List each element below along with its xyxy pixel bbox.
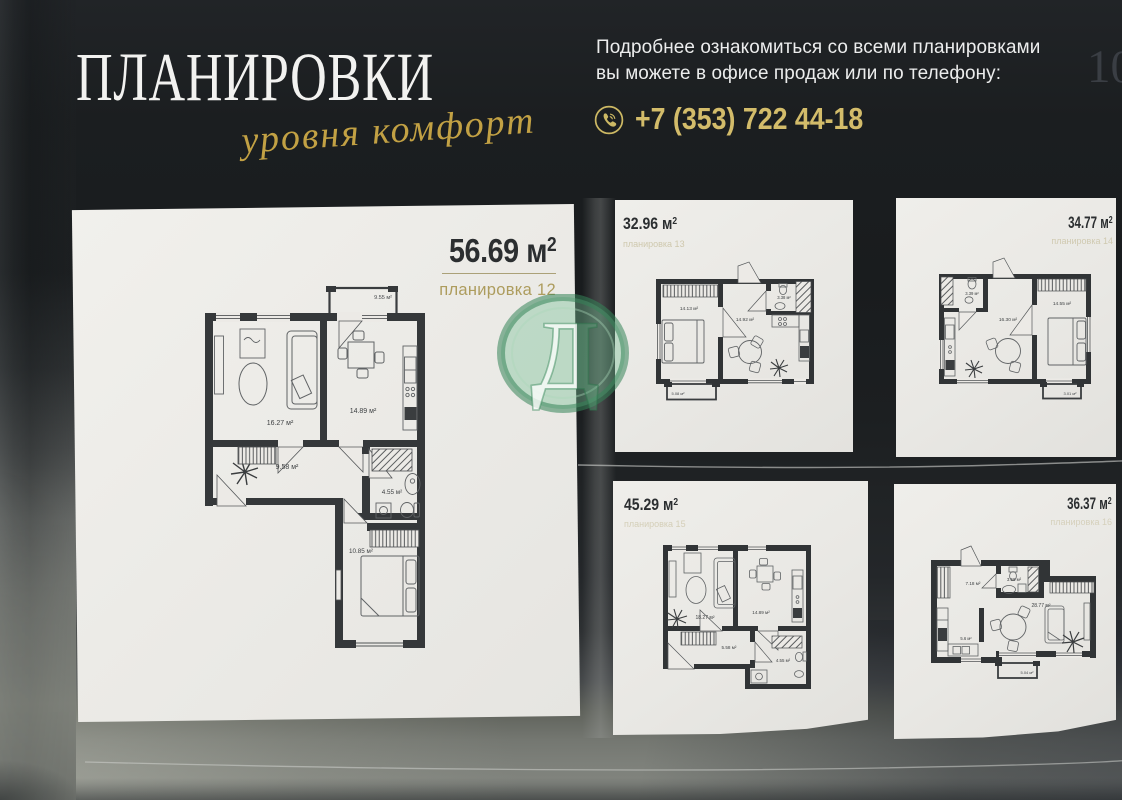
svg-text:9.55 м²: 9.55 м²	[374, 295, 392, 301]
svg-text:7.18 м²: 7.18 м²	[966, 581, 981, 586]
svg-text:9.58 м²: 9.58 м²	[276, 464, 299, 471]
svg-text:3.39 м²: 3.39 м²	[965, 291, 979, 296]
svg-text:4.55 м²: 4.55 м²	[382, 489, 402, 496]
svg-text:4.55 м²: 4.55 м²	[776, 658, 791, 663]
svg-text:3.38 м²: 3.38 м²	[777, 295, 791, 300]
svg-text:14.55 м²: 14.55 м²	[1053, 301, 1072, 307]
svg-text:14.13 м²: 14.13 м²	[680, 306, 699, 312]
svg-text:14.92 м²: 14.92 м²	[736, 317, 755, 323]
svg-text:14.89 м²: 14.89 м²	[752, 610, 770, 615]
svg-text:16.27 м²: 16.27 м²	[267, 420, 294, 427]
svg-text:5.04 м²: 5.04 м²	[1021, 670, 1035, 675]
svg-text:18.27 м²: 18.27 м²	[695, 615, 714, 621]
svg-text:5.6 м²: 5.6 м²	[960, 636, 972, 641]
svg-text:5.08 м²: 5.08 м²	[672, 391, 686, 396]
svg-text:10.85 м²: 10.85 м²	[349, 548, 373, 555]
svg-text:14.89 м²: 14.89 м²	[350, 408, 377, 415]
svg-text:5.58 м²: 5.58 м²	[722, 645, 737, 650]
svg-text:3.01 м²: 3.01 м²	[1064, 391, 1078, 396]
svg-text:16.30 м²: 16.30 м²	[999, 317, 1018, 323]
svg-text:3.58 м²: 3.58 м²	[1007, 577, 1022, 582]
